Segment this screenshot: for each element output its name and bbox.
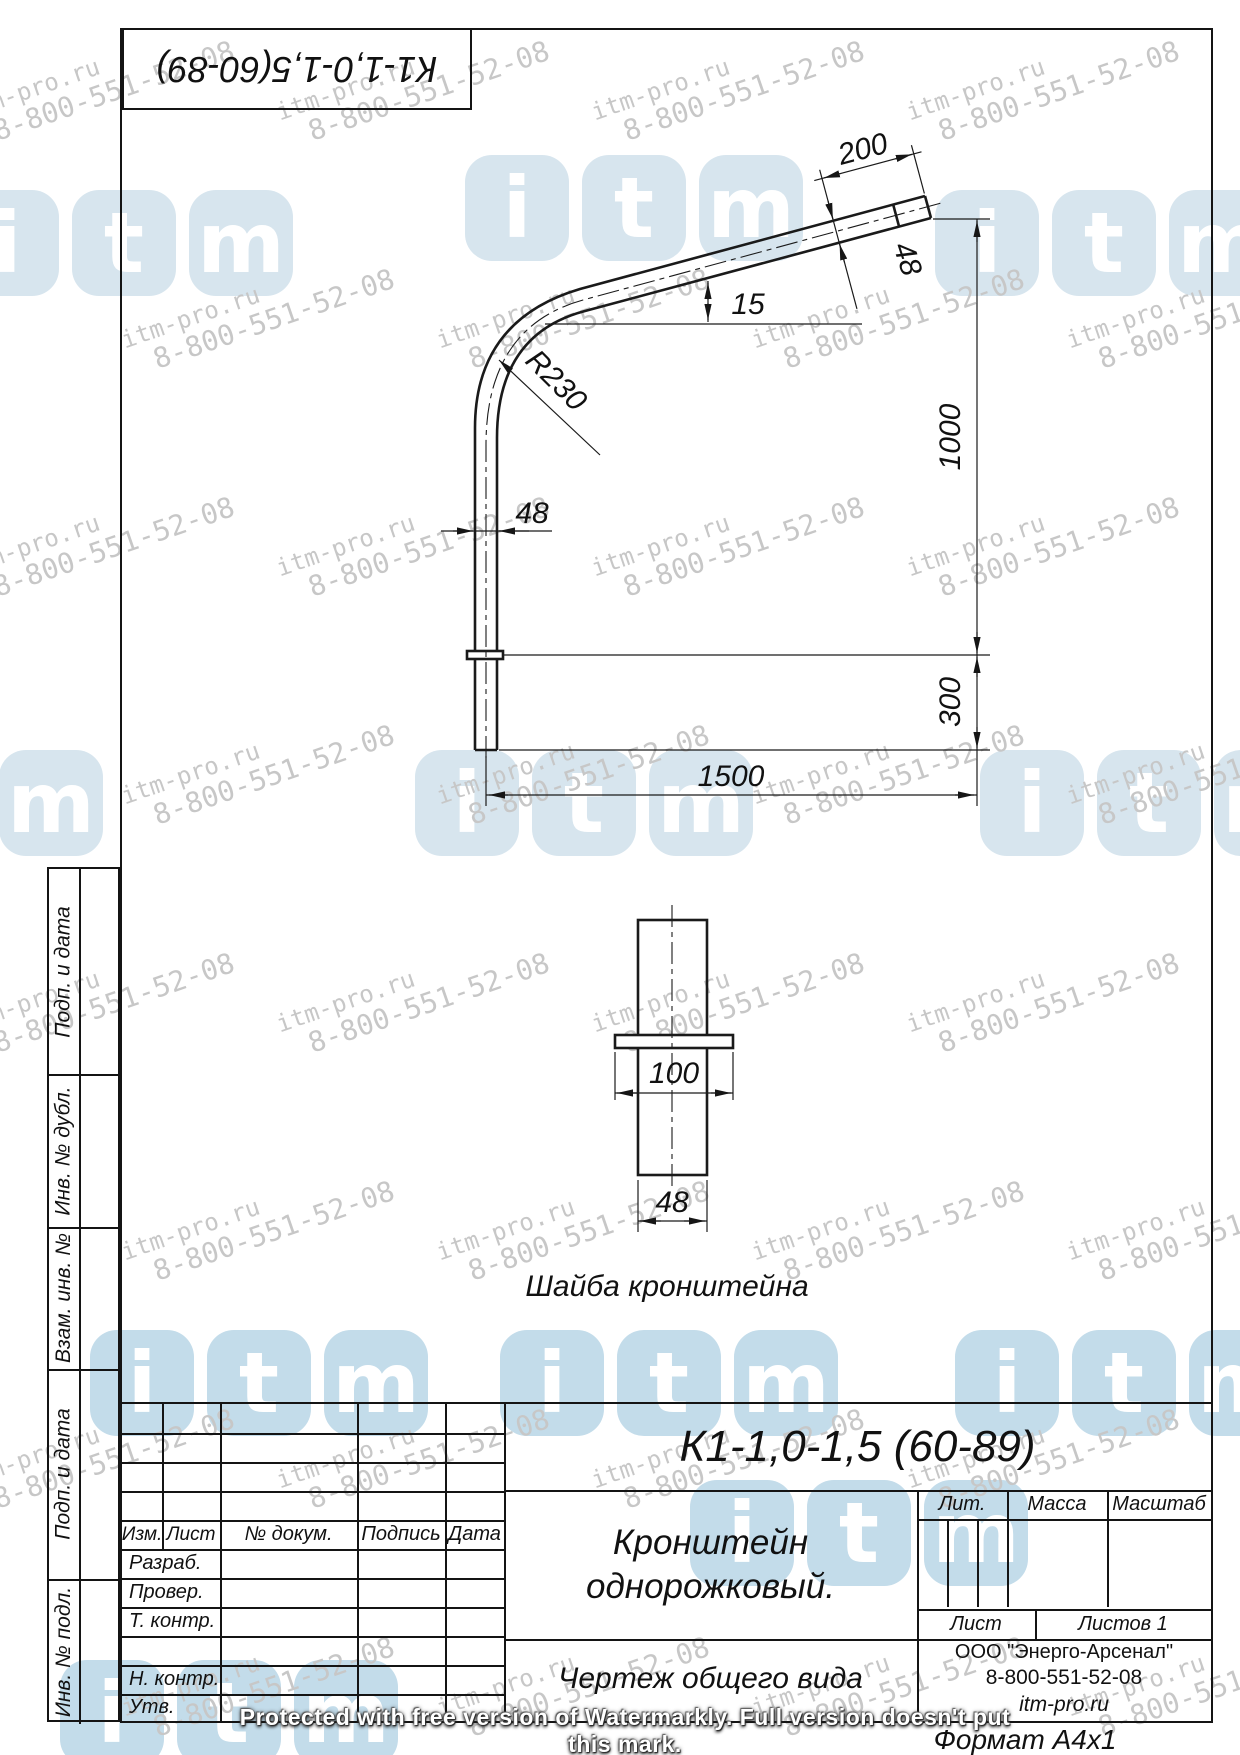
row-razrab: Разраб. xyxy=(122,1549,220,1578)
sheet-label: Лист xyxy=(917,1609,1035,1639)
dim-text-angle-15: 15 xyxy=(731,288,765,321)
dim-text-radius: R230 xyxy=(519,344,593,418)
stamp-grid-line xyxy=(122,1462,504,1464)
dim-text-washer-48: 48 xyxy=(655,1186,689,1219)
row-nkontr: Н. контр. xyxy=(122,1665,220,1694)
stamp-grid-line xyxy=(917,1519,1211,1521)
dim-text-200: 200 xyxy=(833,127,891,172)
col-dokum: № докум. xyxy=(220,1520,357,1549)
stamp-grid-line xyxy=(917,1490,919,1721)
dim-text-1500: 1500 xyxy=(698,760,765,793)
arrow xyxy=(824,174,840,178)
stamp-grid-line xyxy=(122,1607,504,1609)
stamp-grid-line xyxy=(1107,1490,1109,1607)
washer-caption: Шайба кронштейна xyxy=(525,1270,808,1303)
stamp-grid-line xyxy=(977,1519,979,1607)
stamp-grid-line xyxy=(947,1519,949,1607)
row-tkontr: Т. контр. xyxy=(122,1607,220,1636)
arrow xyxy=(895,154,911,158)
stamp-grid-line xyxy=(504,1404,506,1721)
dim-text-arm-48: 48 xyxy=(886,238,928,280)
col-izm: Изм. xyxy=(122,1520,162,1549)
part-name: Кронштейн однорожковый. xyxy=(504,1490,917,1639)
corner-designation-box: К1-1,0-1,5(60-89) xyxy=(122,28,472,110)
arrow xyxy=(828,201,833,219)
mass-header: Масса xyxy=(1007,1490,1107,1519)
left-margin-strip: Подп. и дата Инв. № дубл. Взам. инв. № П… xyxy=(47,867,120,1722)
company-site: itm-pro.ru xyxy=(1019,1692,1109,1718)
title-designation: К1-1,0-1,5 (60-89) xyxy=(504,1404,1211,1490)
dim-text-mast-48: 48 xyxy=(515,497,549,530)
washer-flange xyxy=(615,1035,733,1048)
row-prover: Провер. xyxy=(122,1578,220,1607)
strip-label-podp-data-2: Подп. и дата xyxy=(49,1369,79,1579)
strip-label-vzam-inv: Взам. инв. № xyxy=(49,1227,79,1369)
stamp-grid-line xyxy=(1007,1490,1009,1607)
company-name: ООО "Энерго-Арсенал" xyxy=(955,1640,1173,1665)
stamp-grid-line xyxy=(122,1491,504,1493)
stamp-grid-line xyxy=(162,1404,164,1549)
stamp-grid-line xyxy=(122,1549,504,1551)
strip-label-inv-podl: Инв. № подл. xyxy=(49,1579,79,1724)
company-phone: 8-800-551-52-08 xyxy=(986,1665,1142,1691)
corner-designation-text: К1-1,0-1,5(60-89) xyxy=(156,48,437,90)
mast-inner-contour xyxy=(497,218,931,750)
mast-washer-flange xyxy=(467,651,503,659)
scale-header: Масштаб xyxy=(1107,1490,1211,1519)
col-list: Лист xyxy=(162,1520,220,1549)
stamp-grid-line xyxy=(357,1404,359,1721)
arrow xyxy=(840,244,845,262)
stamp-grid-line xyxy=(504,1490,1211,1492)
stamp-grid-line xyxy=(220,1404,222,1721)
mast-centerline xyxy=(486,202,945,758)
dim-text-300: 300 xyxy=(934,677,967,727)
col-data: Дата xyxy=(445,1520,504,1549)
dim-text-washer-100: 100 xyxy=(649,1057,699,1090)
stamp-grid-line xyxy=(122,1665,504,1667)
part-name-line2: однорожковый. xyxy=(586,1565,835,1609)
col-podpis: Подпись xyxy=(357,1520,445,1549)
stamp-grid-line xyxy=(122,1520,504,1522)
stamp-grid-line xyxy=(917,1609,1211,1611)
stamp-grid-line xyxy=(122,1433,504,1435)
stamp-grid-line xyxy=(122,1578,504,1580)
stamp-grid-line xyxy=(122,1694,504,1696)
dim-text-1000: 1000 xyxy=(934,403,967,470)
part-name-line1: Кронштейн xyxy=(613,1521,808,1565)
strip-label-podp-data-1: Подп. и дата xyxy=(49,869,79,1074)
lit-header: Лит. xyxy=(917,1490,1007,1519)
watermarkly-protected-note: Protected with free version of Watermark… xyxy=(225,1704,1025,1755)
stamp-grid-line xyxy=(504,1639,1211,1641)
drawing-sheet: itmitmitmitmitmitmitmitmitmitmitm itm-pr… xyxy=(0,0,1240,1755)
row-utv: Утв. xyxy=(122,1694,220,1721)
strip-label-inv-dubl: Инв. № дубл. xyxy=(49,1074,79,1227)
strip-line xyxy=(79,869,81,1724)
stamp-grid-line xyxy=(1035,1609,1037,1639)
title-block: Изм. Лист № докум. Подпись Дата Разраб. … xyxy=(120,1402,1213,1723)
bracket-main-view: 48 15 R230 200 48 1000 300 1500 xyxy=(441,127,990,806)
sheets-label: Листов 1 xyxy=(1035,1609,1211,1639)
stamp-grid-line xyxy=(445,1404,447,1721)
stamp-grid-line xyxy=(122,1636,504,1638)
washer-view: 100 48 Шайба кронштейна xyxy=(525,905,808,1303)
